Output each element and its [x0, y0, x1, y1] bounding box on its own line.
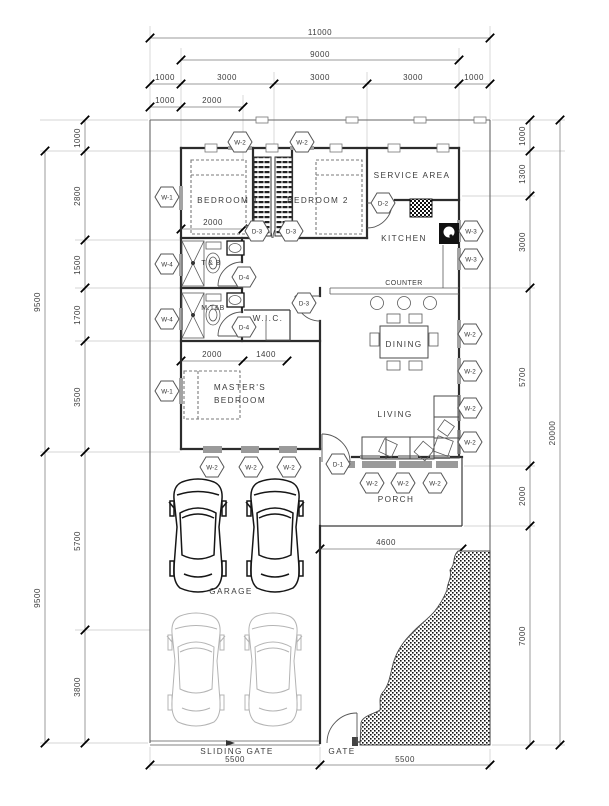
bar-stool — [398, 297, 411, 310]
svg-text:W-3: W-3 — [465, 228, 477, 235]
label-gate: GATE — [328, 747, 355, 756]
room-label-bedroom2: BEDROOM 2 — [287, 196, 349, 205]
svg-text:5700: 5700 — [73, 531, 82, 551]
room-label-garage: GARAGE — [209, 587, 252, 596]
svg-text:W-2: W-2 — [283, 464, 295, 471]
car-garage-2 — [246, 479, 304, 592]
svg-text:W-2: W-2 — [464, 439, 476, 446]
window-symbol-w4: W-4 — [155, 309, 179, 329]
svg-text:W-2: W-2 — [206, 464, 218, 471]
window-symbol-w2: W-2 — [458, 361, 482, 381]
svg-text:W-2: W-2 — [464, 331, 476, 338]
svg-text:1000: 1000 — [464, 73, 484, 82]
svg-text:3000: 3000 — [217, 73, 237, 82]
svg-text:1000: 1000 — [518, 126, 527, 146]
svg-text:1000: 1000 — [155, 96, 175, 105]
svg-text:3000: 3000 — [403, 73, 423, 82]
room-label-porch: PORCH — [378, 495, 415, 504]
door-symbol-d1: D-1 — [326, 454, 350, 474]
svg-text:D-3: D-3 — [286, 228, 297, 235]
svg-text:3000: 3000 — [518, 232, 527, 252]
label-sliding-gate: SLIDING GATE — [200, 747, 274, 756]
window-symbol-w2: W-2 — [239, 457, 263, 477]
svg-text:3500: 3500 — [73, 387, 82, 407]
svg-text:1300: 1300 — [518, 164, 527, 184]
svg-text:W-2: W-2 — [245, 464, 257, 471]
window-symbol-w2: W-2 — [423, 473, 447, 493]
window-symbol-w3: W-3 — [459, 249, 483, 269]
window-symbol-w1: W-1 — [155, 381, 179, 401]
window-symbol-w3: W-3 — [459, 221, 483, 241]
floor-plan-drawing: 11000 9000 1000 3000 3000 3000 1000 1000… — [0, 0, 609, 806]
svg-text:W-2: W-2 — [366, 480, 378, 487]
car-driveway-1 — [167, 613, 225, 726]
svg-text:1000: 1000 — [155, 73, 175, 82]
svg-text:W-3: W-3 — [465, 256, 477, 263]
svg-text:W-2: W-2 — [464, 405, 476, 412]
svg-text:W-2: W-2 — [234, 139, 246, 146]
svg-text:W-1: W-1 — [161, 194, 173, 201]
svg-text:5700: 5700 — [518, 367, 527, 387]
room-label-masters-bedroom: BEDROOM — [214, 396, 266, 405]
svg-text:1500: 1500 — [73, 255, 82, 275]
window-symbol-w2: W-2 — [391, 473, 415, 493]
svg-text:D-2: D-2 — [378, 200, 389, 207]
window-symbol-w2: W-2 — [458, 432, 482, 452]
garden-area — [360, 551, 490, 745]
window-symbol-w2: W-2 — [458, 398, 482, 418]
svg-text:W-2: W-2 — [464, 368, 476, 375]
window-symbol-w4: W-4 — [155, 254, 179, 274]
svg-text:W-4: W-4 — [161, 316, 173, 323]
room-label-dining: DINING — [385, 340, 422, 349]
bar-stool — [371, 297, 384, 310]
svg-text:2000: 2000 — [518, 486, 527, 506]
dim-top-house: 9000 — [310, 50, 330, 59]
svg-text:D-4: D-4 — [239, 274, 250, 281]
car-garage-1 — [169, 479, 227, 592]
svg-text:W-2: W-2 — [429, 480, 441, 487]
svg-text:W-1: W-1 — [161, 388, 173, 395]
svg-text:4600: 4600 — [376, 538, 396, 547]
svg-text:9500: 9500 — [33, 292, 42, 312]
svg-text:W-2: W-2 — [397, 480, 409, 487]
svg-text:1000: 1000 — [73, 128, 82, 148]
kitchen-fixtures — [330, 199, 459, 310]
floor-plan-sheet: 11000 9000 1000 3000 3000 3000 1000 1000… — [0, 0, 609, 806]
bar-stool — [424, 297, 437, 310]
svg-text:20000: 20000 — [548, 421, 557, 446]
svg-text:2000: 2000 — [203, 218, 223, 227]
window-symbol-w2: W-2 — [458, 324, 482, 344]
room-label-master-toilet-bath: M.T&B — [201, 305, 224, 312]
svg-text:5500: 5500 — [395, 755, 415, 764]
bed-master — [184, 371, 240, 419]
cars — [167, 479, 304, 726]
room-label-masters-bedroom: MASTER'S — [214, 383, 266, 392]
window-symbol-w2: W-2 — [200, 457, 224, 477]
svg-text:1700: 1700 — [73, 305, 82, 325]
svg-text:5500: 5500 — [225, 755, 245, 764]
window-symbol-w2: W-2 — [277, 457, 301, 477]
svg-text:9500: 9500 — [33, 588, 42, 608]
room-label-kitchen: KITCHEN — [381, 234, 427, 243]
svg-text:W-4: W-4 — [161, 261, 173, 268]
sofa — [362, 396, 459, 461]
car-driveway-2 — [244, 613, 302, 726]
room-label-service-area: SERVICE AREA — [374, 171, 451, 180]
landscaped-garden — [360, 551, 490, 745]
room-label-bedroom1: BEDROOM 1 — [197, 196, 259, 205]
door-symbol-d4: D-4 — [232, 267, 256, 287]
svg-text:7000: 7000 — [518, 626, 527, 646]
window-symbol-w1: W-1 — [155, 187, 179, 207]
svg-text:2000: 2000 — [202, 96, 222, 105]
room-label-living: LIVING — [377, 410, 412, 419]
svg-text:D-3: D-3 — [299, 300, 310, 307]
room-label-wic: W.I.C. — [253, 314, 284, 323]
svg-text:D-3: D-3 — [252, 228, 263, 235]
svg-text:D-1: D-1 — [333, 461, 344, 468]
svg-text:D-4: D-4 — [239, 324, 250, 331]
room-label-toilet-bath: T & B — [201, 260, 220, 267]
svg-text:2800: 2800 — [73, 186, 82, 206]
room-label-counter: COUNTER — [385, 280, 422, 287]
svg-text:3000: 3000 — [310, 73, 330, 82]
dim-top-overall: 11000 — [308, 28, 332, 37]
svg-text:2000: 2000 — [202, 350, 222, 359]
svg-text:W-2: W-2 — [296, 139, 308, 146]
svg-text:1400: 1400 — [256, 350, 276, 359]
svg-text:3800: 3800 — [73, 677, 82, 697]
stove — [410, 199, 432, 217]
window-symbol-w2: W-2 — [360, 473, 384, 493]
